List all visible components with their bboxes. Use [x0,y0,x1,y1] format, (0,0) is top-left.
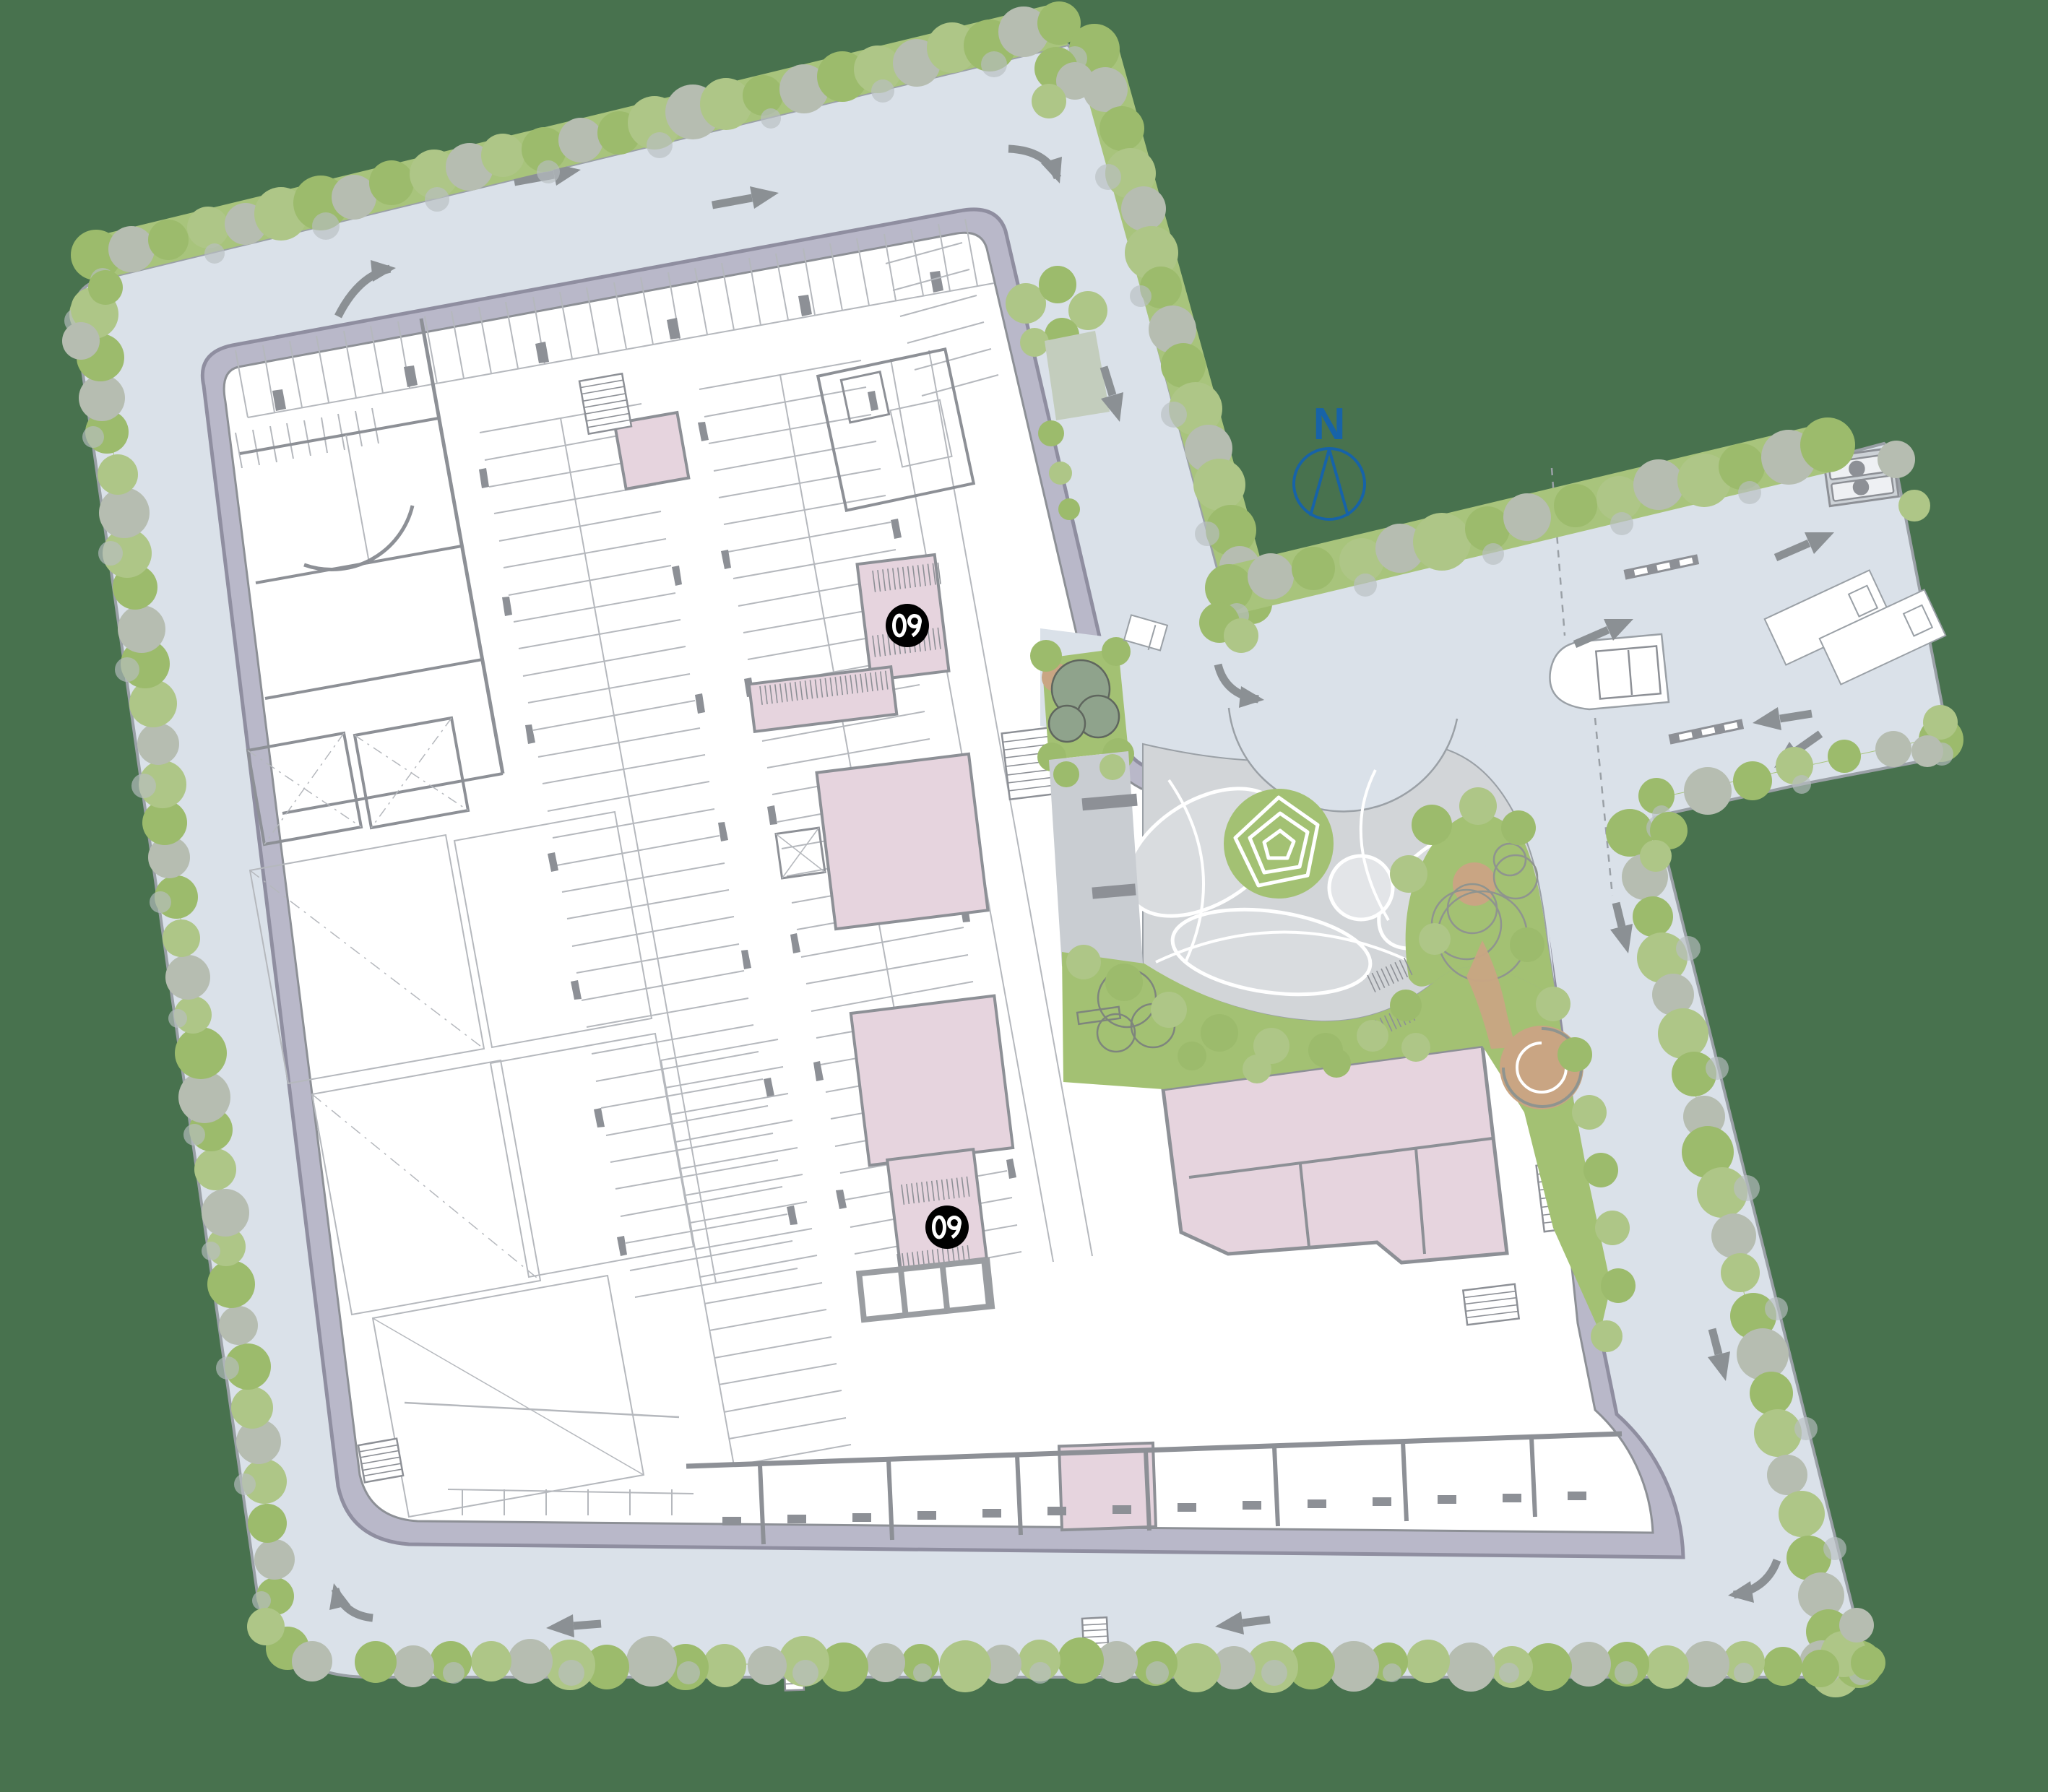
svg-text:N: N [1313,399,1346,449]
